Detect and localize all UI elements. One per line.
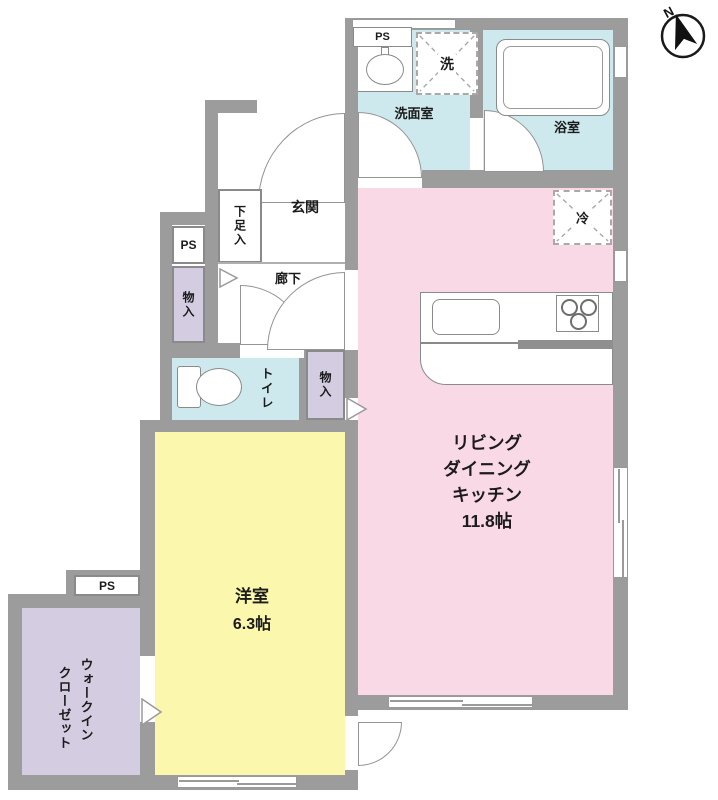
bedroom-label-text: 洋室 <box>162 583 342 611</box>
wall <box>140 420 358 432</box>
ldk-door-opening <box>345 270 358 350</box>
room-label-bathroom: 浴室 <box>527 118 607 138</box>
ldk-label-line2: ダイニング <box>397 456 577 482</box>
bedroom-size-text: 6.3帖 <box>162 611 342 639</box>
shoe-cabinet-label: 下足入 <box>232 205 249 247</box>
window <box>614 250 627 282</box>
wic-label-text1: ウォークイン <box>79 658 94 742</box>
toilet-label-text: トイレ <box>259 367 273 411</box>
window-pane-line <box>179 780 239 782</box>
kitchen-partition-wall <box>518 340 613 349</box>
wall <box>205 100 218 225</box>
room-label-entrance: 玄関 <box>265 197 345 218</box>
window-pane-line <box>618 469 620 523</box>
wic-label-col2: クローゼット <box>54 658 74 758</box>
fridge-space: 冷 <box>553 190 612 245</box>
sliding-window <box>388 696 533 708</box>
kitchen-island <box>420 343 613 385</box>
pipe-space-top: PS <box>353 27 412 47</box>
sliding-window <box>177 776 297 788</box>
bedroom-outside-door-opening <box>345 716 358 770</box>
pipe-space-label: PS <box>99 579 115 593</box>
room-label-ldk: リビング ダイニング キッチン 11.8帖 <box>397 430 577 534</box>
wic-label-col1: ウォークイン <box>76 650 96 750</box>
room-label-washroom: 洗面室 <box>368 104 460 124</box>
window <box>614 46 627 78</box>
entrance-step-line <box>218 262 345 264</box>
compass-north-icon: N <box>648 2 714 64</box>
sliding-window <box>613 467 628 578</box>
toilet-icon <box>196 368 242 406</box>
storage-ldk-label: 物入 <box>317 371 334 399</box>
front-door-swing-arc <box>258 113 345 203</box>
storage-hall: 物入 <box>172 266 205 343</box>
wall <box>8 594 22 790</box>
burner-icon <box>570 313 587 330</box>
room-label-bedroom: 洋室 6.3帖 <box>162 583 342 639</box>
storage-hall-label: 物入 <box>180 291 197 319</box>
window-pane-line <box>237 783 296 785</box>
window-pane-line <box>462 704 532 706</box>
bathroom-label-text: 浴室 <box>554 120 580 135</box>
washroom-label-text: 洗面室 <box>394 106 433 121</box>
fridge-label: 冷 <box>574 208 591 227</box>
window-pane-line <box>390 700 463 702</box>
front-door-opening <box>257 100 345 113</box>
hallway-label-text: 廊下 <box>275 271 301 286</box>
pipe-space-label: PS <box>180 238 196 252</box>
entrance-label-text: 玄関 <box>291 199 319 215</box>
opening-arrow-icon <box>219 268 239 288</box>
bedroom-outside-door-swing-arc <box>358 722 402 766</box>
wall <box>345 113 358 790</box>
pipe-space-label: PS <box>375 31 390 43</box>
washer-space: 洗 <box>416 32 478 95</box>
wall <box>205 225 218 355</box>
wall <box>160 212 172 432</box>
opening-arrow-icon <box>141 698 163 726</box>
ldk-label-line1: リビング <box>397 430 577 456</box>
ldk-label-line3: キッチン <box>397 482 577 508</box>
wic-label-text2: クローゼット <box>57 666 72 750</box>
pipe-space-left: PS <box>172 226 205 264</box>
room-label-toilet: トイレ <box>256 360 275 418</box>
washbasin-icon <box>366 54 404 85</box>
kitchen-sink <box>432 299 500 335</box>
pipe-space-wic: PS <box>74 575 140 596</box>
floor-plan: PS 下足入 PS 物入 物入 PS 洗 冷 <box>0 0 718 800</box>
storage-ldk: 物入 <box>306 350 345 420</box>
window-pane-line <box>622 520 624 577</box>
opening-arrow-icon <box>346 397 368 421</box>
ldk-size-text: 11.8帖 <box>397 508 577 534</box>
shoe-cabinet: 下足入 <box>218 189 262 263</box>
wall <box>613 18 628 710</box>
washer-label: 洗 <box>438 54 456 74</box>
room-label-hallway: 廊下 <box>253 269 323 289</box>
bathtub-inner <box>503 46 603 109</box>
